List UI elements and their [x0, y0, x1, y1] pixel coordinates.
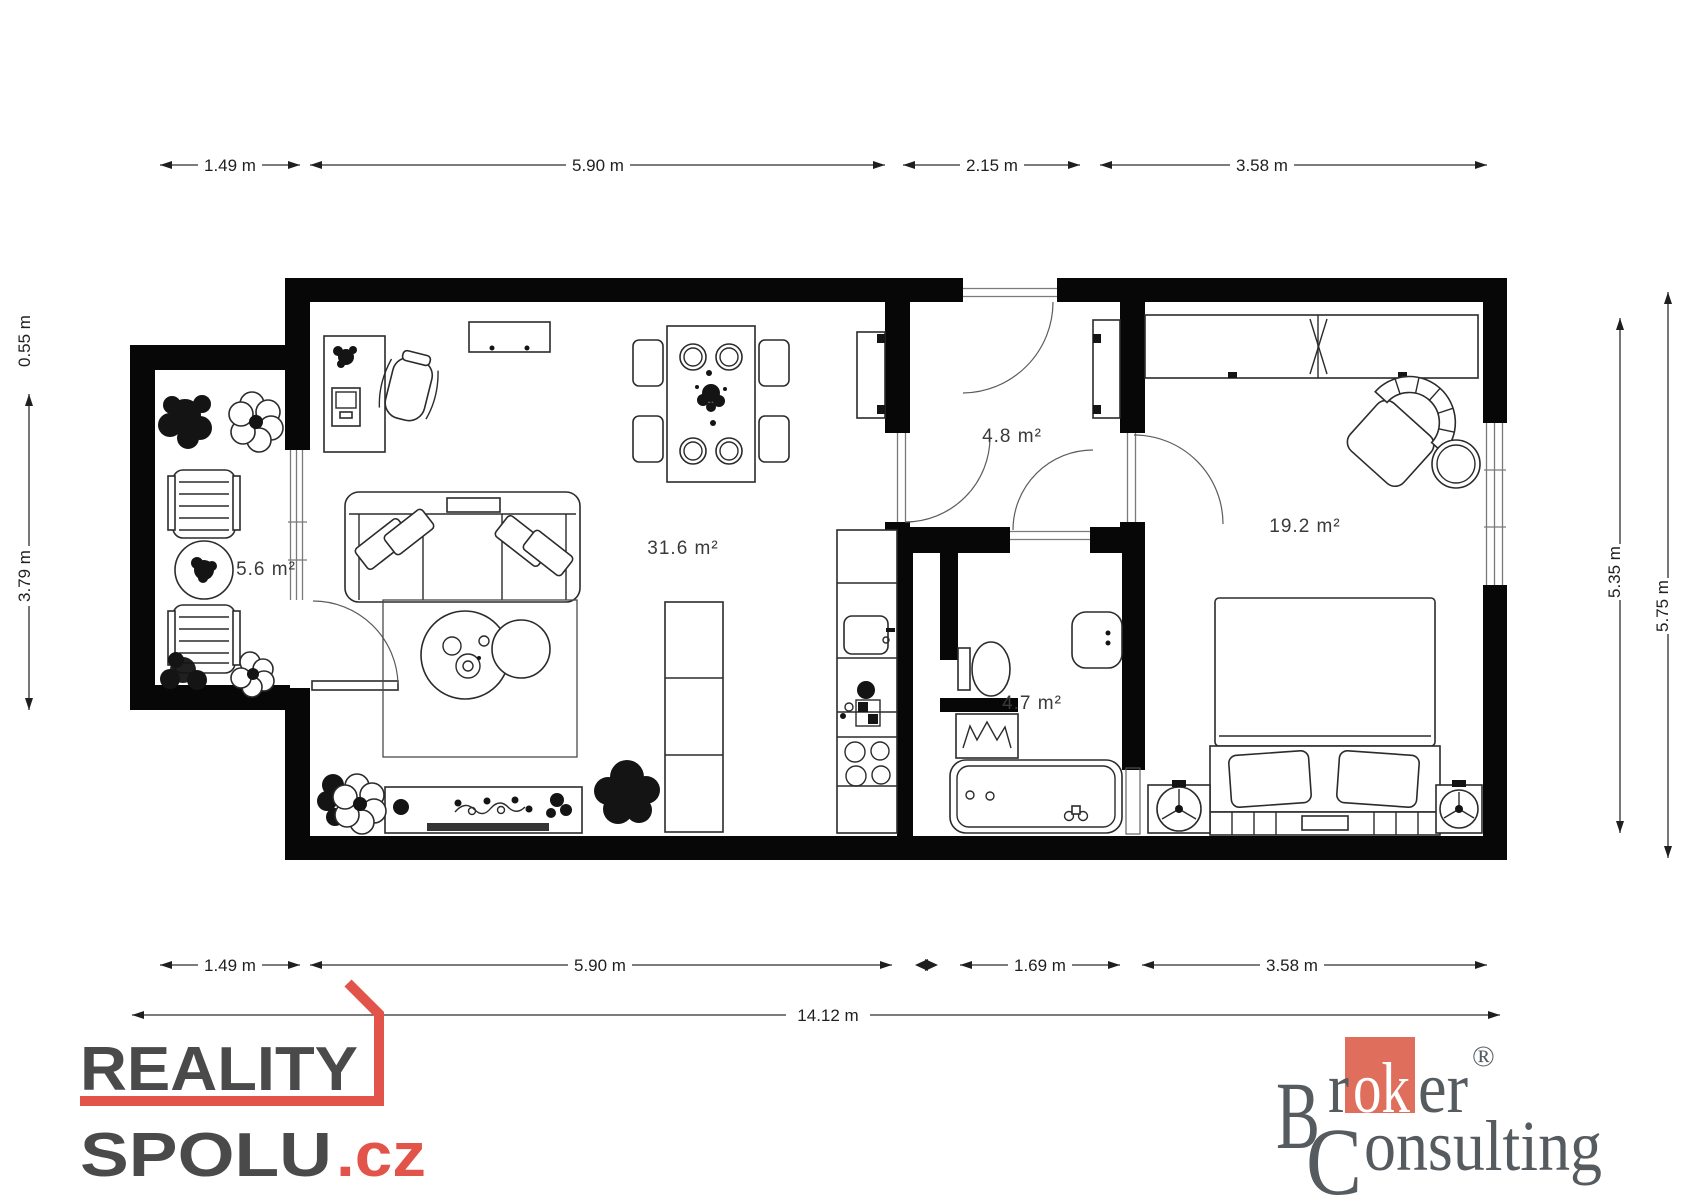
kitchen-sink-icon: [844, 616, 895, 654]
dim-bottom-1: 1.49 m: [204, 956, 256, 975]
coffee-table: [421, 611, 550, 699]
dim-top-1: 1.49 m: [204, 156, 256, 175]
dim-bottom-4: 3.58 m: [1266, 956, 1318, 975]
bedroom-window: [1484, 423, 1506, 585]
room-area-label-hall: 4.8 m²: [982, 426, 1042, 447]
broker-consulting-logo: B r ok er ® C onsulting: [1276, 1037, 1602, 1200]
balcony-door: [312, 601, 398, 690]
sideboard: [469, 322, 550, 352]
dim-right-outer: 5.75 m: [1653, 580, 1672, 632]
balcony-furniture: [158, 392, 283, 697]
tv-icon: [427, 823, 549, 831]
balcony-plant-icon: [158, 392, 283, 452]
bathroom-partition: [1126, 768, 1140, 834]
dim-left-height: 3.79 m: [15, 550, 34, 602]
dim-bottom-3: 1.69 m: [1014, 956, 1066, 975]
double-bed: [1210, 598, 1440, 835]
shelf-unit: [665, 602, 723, 832]
flower-plant-icon: [317, 774, 386, 834]
entry-door: [963, 289, 1057, 394]
broker-frag-onsulting: onsulting: [1364, 1106, 1602, 1186]
dim-right-inner: 5.35 m: [1605, 546, 1624, 598]
room-area-label-balcony: 5.6 m²: [236, 559, 296, 580]
living-hall-door: [898, 433, 991, 522]
bathroom-door: [1010, 450, 1093, 540]
dim-top-2: 5.90 m: [572, 156, 624, 175]
pillow: [1336, 750, 1419, 807]
floorplan-page: 31.6 m² 4.8 m² 4.7 m² 19.2 m² 5.6 m² 1.4…: [0, 0, 1698, 1200]
dim-top-4: 3.58 m: [1236, 156, 1288, 175]
balcony-chair: [168, 470, 240, 538]
bathtub-icon: [950, 760, 1122, 833]
dim-left-offset: 0.55 m: [15, 315, 34, 367]
dim-top-3: 2.15 m: [966, 156, 1018, 175]
dim-total: 14.12 m: [797, 1006, 858, 1025]
room-area-label-bedroom: 19.2 m²: [1269, 516, 1340, 537]
toilet-icon: [958, 642, 1010, 696]
tv-unit: [385, 787, 582, 833]
tree-plant-icon: [594, 760, 660, 824]
registered-mark-icon: ®: [1472, 1040, 1495, 1073]
balcony-table: [175, 541, 233, 599]
sofa: [345, 492, 580, 602]
wardrobe: [1093, 320, 1120, 418]
kitchen-counter: [837, 530, 897, 833]
reality-spolu-tld: .cz: [336, 1121, 426, 1190]
living-room-furniture: [317, 322, 897, 834]
pillow: [1228, 750, 1311, 807]
bedroom-furniture: [1145, 315, 1482, 835]
nightstand: [1148, 780, 1210, 833]
floor-plan-canvas: 31.6 m² 4.8 m² 4.7 m² 19.2 m² 5.6 m² 1.4…: [0, 0, 1698, 1200]
reality-spolu-line1: REALITY: [80, 1035, 358, 1104]
bathroom-sink-icon: [1072, 612, 1122, 668]
reality-spolu-logo: REALITY SPOLU .cz: [80, 983, 426, 1190]
room-area-label-bathroom: 4.7 m²: [1002, 693, 1062, 714]
side-table: [1432, 440, 1480, 488]
wardrobe: [857, 332, 885, 418]
hall-bedroom-door: [1128, 433, 1224, 524]
dim-bottom-small-arrows: [915, 959, 938, 971]
room-area-label-living: 31.6 m²: [647, 538, 718, 559]
wardrobe: [1145, 315, 1478, 378]
dining-table: [633, 326, 789, 482]
broker-initial-c: C: [1306, 1108, 1362, 1200]
nightstand: [1436, 780, 1482, 833]
washing-machine-icon: [956, 714, 1018, 758]
reality-spolu-line2: SPOLU: [80, 1121, 332, 1190]
dim-bottom-2: 5.90 m: [574, 956, 626, 975]
bathroom-furniture: [950, 612, 1122, 833]
